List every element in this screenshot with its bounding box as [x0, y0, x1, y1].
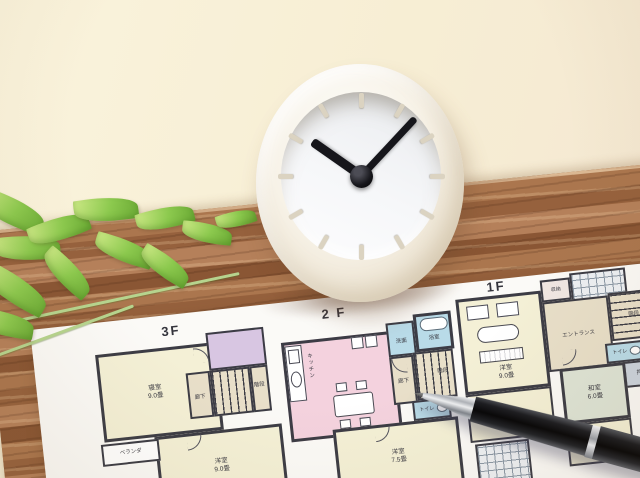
label-storage-1f: 収納	[550, 286, 561, 294]
kitchen-sink	[288, 349, 300, 364]
leaf	[0, 260, 53, 319]
sofa-chair	[466, 304, 489, 320]
tick-mark	[317, 102, 329, 117]
tick-mark	[359, 93, 364, 108]
photo-scene: 3F 寝室 9.0畳 廊下 階段 洋室 9.0畳 ベランダ 2 F	[0, 0, 640, 478]
label-stairs-1f: 階段	[628, 311, 640, 319]
washer-symbol	[351, 336, 364, 349]
label-stairs-3f: 階段	[253, 381, 265, 389]
tick-mark	[430, 174, 445, 179]
label-hallway-3f: 廊下	[194, 394, 206, 402]
label-bathroom: 浴室	[428, 334, 440, 342]
partial-tile-area	[475, 439, 534, 478]
toilet-symbol-1f	[629, 345, 640, 355]
label-western-3f: 洋室 9.0畳	[213, 457, 230, 475]
label-western-2f: 洋室 7.5畳	[390, 448, 407, 466]
leaf	[36, 245, 98, 301]
label-washroom: 洗面	[396, 338, 408, 346]
clock-center-hub	[350, 165, 373, 188]
chair	[355, 380, 367, 390]
tick-mark	[419, 132, 434, 144]
leaf-sprig	[0, 180, 276, 360]
refrigerator-symbol	[365, 335, 378, 348]
chair	[336, 382, 348, 392]
label-bedroom: 寝室 9.0畳	[147, 384, 164, 402]
tick-mark	[419, 208, 434, 220]
label-hallway-2f: 廊下	[398, 378, 410, 386]
tick-mark	[359, 245, 364, 260]
dining-table	[333, 391, 375, 417]
tick-mark	[317, 234, 329, 249]
pen-tip-cone	[420, 385, 476, 420]
tick-mark	[393, 102, 405, 117]
clock-face	[281, 92, 441, 260]
label-japanese: 和室 6.0畳	[587, 384, 604, 402]
tick-mark	[278, 174, 293, 179]
tick-mark	[287, 132, 302, 144]
label-western-1f: 洋室 9.0畳	[498, 364, 515, 382]
stairs-3f	[209, 367, 254, 417]
label-stairs-2f: 階段	[437, 368, 449, 376]
plan-title-1f: 1F	[486, 278, 507, 295]
label-closet: 押入	[636, 369, 640, 377]
tick-mark	[393, 234, 405, 249]
sofa-chair	[496, 301, 519, 317]
tick-mark	[287, 208, 302, 220]
